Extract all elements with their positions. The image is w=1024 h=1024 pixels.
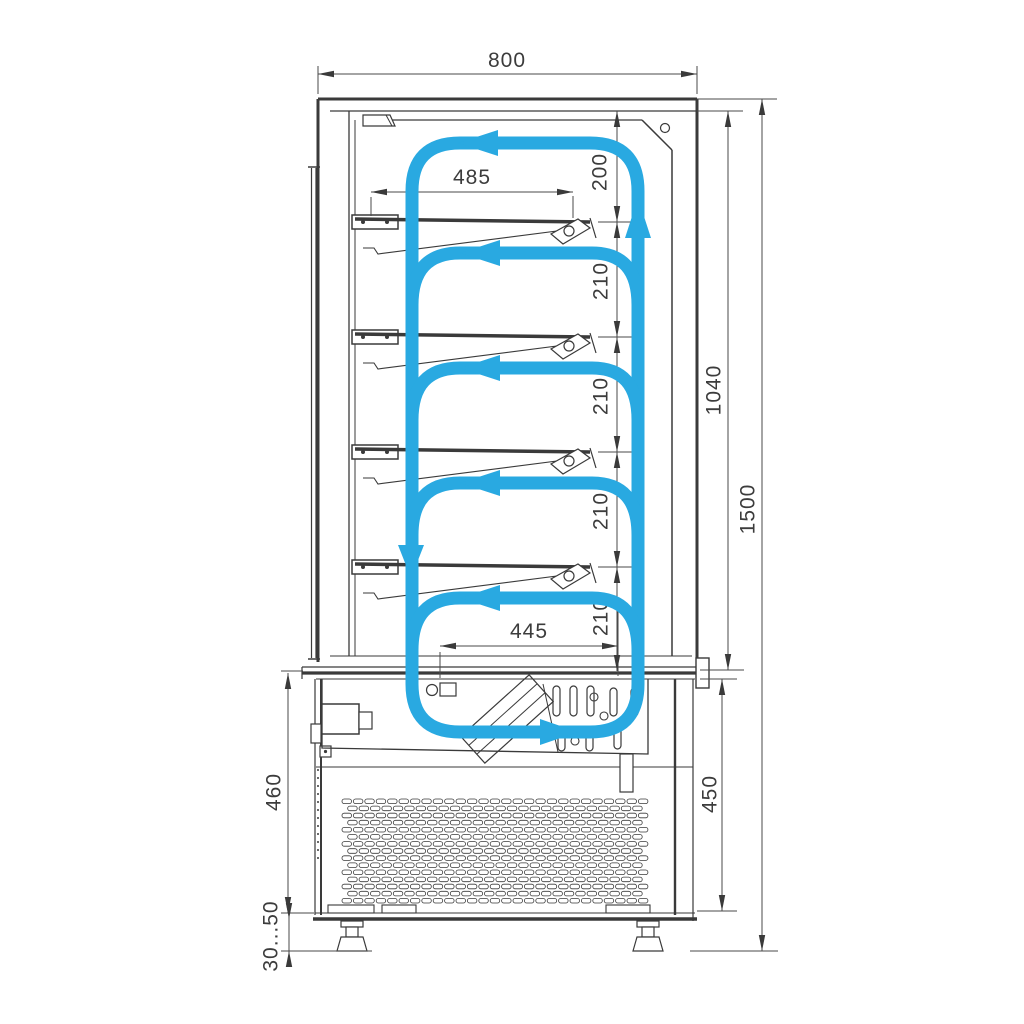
gasket-dot xyxy=(317,817,319,819)
dim-label-1500: 1500 xyxy=(737,484,760,535)
canvas-background xyxy=(0,0,1024,1024)
drain-tube xyxy=(620,754,633,792)
shelf-bracket xyxy=(352,445,398,459)
dim-label-485: 485 xyxy=(453,166,491,189)
clamp-roller-icon xyxy=(564,226,574,236)
counter-right-cap xyxy=(696,658,709,688)
gasket-dot xyxy=(317,825,319,827)
dim-label-200: 200 xyxy=(589,153,612,191)
clamp-roller-icon xyxy=(564,341,574,351)
shelf-bracket xyxy=(352,330,398,344)
dim-label-30-50: 30...50 xyxy=(260,900,283,971)
gasket-dot xyxy=(317,841,319,843)
clamp-roller-icon xyxy=(564,456,574,466)
gasket-dot xyxy=(317,801,319,803)
ceiling-lamp-bracket xyxy=(363,115,395,126)
dim-label-210-1: 210 xyxy=(590,262,613,300)
gasket-dot xyxy=(317,785,319,787)
dim-label-450: 450 xyxy=(699,775,722,813)
clamp-roller-icon xyxy=(564,571,574,581)
display-case-section-diagram: 800 485 445 200 210 210 210 210 xyxy=(0,0,1024,1024)
gasket-dot xyxy=(317,857,319,859)
dim-label-460: 460 xyxy=(263,773,286,811)
gasket-dot xyxy=(317,793,319,795)
dim-label-210-3: 210 xyxy=(590,492,613,530)
dim-label-1040: 1040 xyxy=(703,365,726,416)
shelf-bracket xyxy=(352,560,398,574)
dim-label-800: 800 xyxy=(488,49,526,72)
gasket-dot xyxy=(317,769,319,771)
gasket-dot xyxy=(317,777,319,779)
dim-label-445: 445 xyxy=(510,620,548,643)
gasket-dot xyxy=(317,833,319,835)
gasket-dot xyxy=(317,809,319,811)
gasket-dot xyxy=(317,849,319,851)
dim-label-210-2: 210 xyxy=(590,377,613,415)
shelf-bracket xyxy=(352,215,398,229)
